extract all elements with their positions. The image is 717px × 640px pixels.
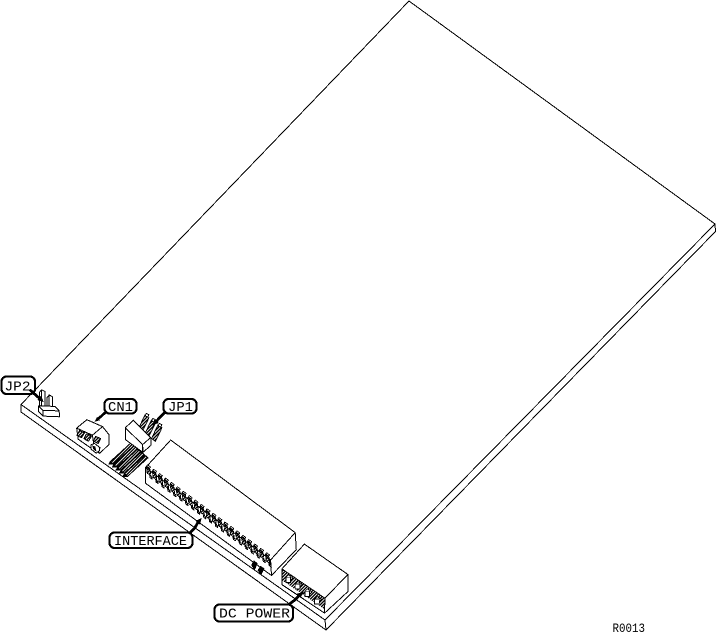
svg-text:JP1: JP1 [168, 401, 193, 416]
svg-text:R0013: R0013 [613, 622, 646, 636]
svg-text:JP2: JP2 [5, 381, 31, 396]
svg-text:CN1: CN1 [108, 401, 133, 416]
svg-text:DC POWER: DC POWER [219, 608, 290, 623]
svg-text:INTERFACE: INTERFACE [114, 535, 187, 550]
